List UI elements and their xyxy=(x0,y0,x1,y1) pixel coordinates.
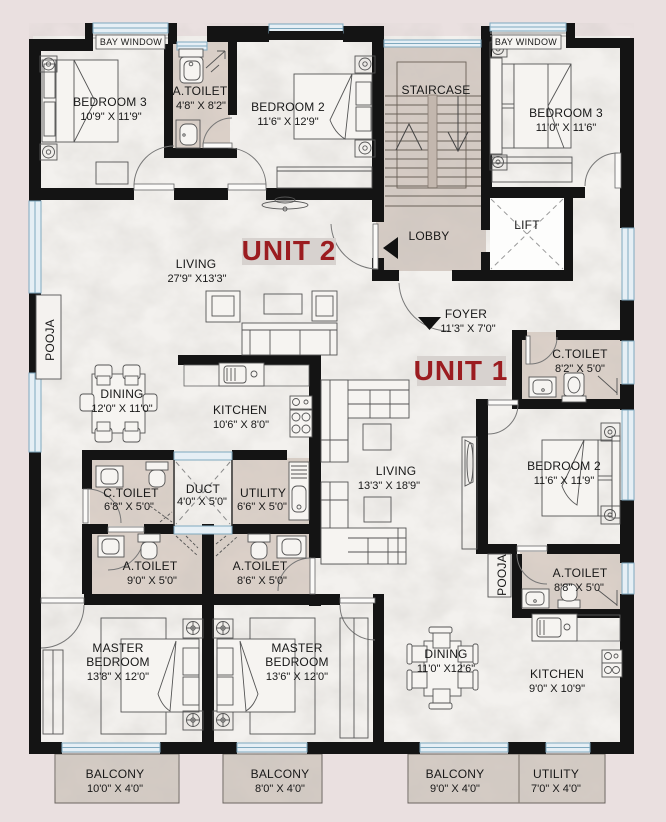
svg-text:A.TOILET: A.TOILET xyxy=(553,566,608,580)
svg-text:UNIT 2: UNIT 2 xyxy=(242,235,337,266)
svg-text:4'0" X 5'0": 4'0" X 5'0" xyxy=(177,496,227,508)
svg-text:FOYER: FOYER xyxy=(445,307,487,321)
svg-text:7'0" X 4'0": 7'0" X 4'0" xyxy=(531,783,581,795)
svg-text:9'0" X 5'0": 9'0" X 5'0" xyxy=(127,575,177,587)
svg-text:8'2" X 5'0": 8'2" X 5'0" xyxy=(555,363,605,375)
svg-text:8'0" X 4'0": 8'0" X 4'0" xyxy=(255,783,305,795)
svg-text:STAIRCASE: STAIRCASE xyxy=(402,83,471,97)
svg-text:13'8" X 12'0": 13'8" X 12'0" xyxy=(87,671,149,683)
svg-text:LIVING: LIVING xyxy=(176,257,217,271)
svg-text:8'6" X 5'0": 8'6" X 5'0" xyxy=(237,575,287,587)
svg-text:11'6" X 11'9": 11'6" X 11'9" xyxy=(534,475,595,487)
svg-text:LIVING: LIVING xyxy=(376,464,417,478)
svg-text:13'6" X 12'0": 13'6" X 12'0" xyxy=(266,671,328,683)
svg-text:C.TOILET: C.TOILET xyxy=(103,486,159,500)
svg-text:MASTER: MASTER xyxy=(271,641,322,655)
svg-text:LIFT: LIFT xyxy=(514,218,540,232)
svg-text:BALCONY: BALCONY xyxy=(426,767,485,781)
svg-text:9'0" X 10'9": 9'0" X 10'9" xyxy=(529,683,585,695)
svg-text:11'0" X12'6": 11'0" X12'6" xyxy=(417,663,475,675)
svg-text:DINING: DINING xyxy=(424,647,467,661)
svg-text:11'0" X 11'6": 11'0" X 11'6" xyxy=(536,122,597,134)
svg-text:12'0" X 11'0": 12'0" X 11'0" xyxy=(91,403,152,415)
svg-text:8'8" X 5'0": 8'8" X 5'0" xyxy=(554,582,604,594)
svg-text:9'0" X 4'0": 9'0" X 4'0" xyxy=(430,783,480,795)
svg-text:DINING: DINING xyxy=(100,387,143,401)
svg-text:BALCONY: BALCONY xyxy=(251,767,310,781)
svg-text:10'9" X 11'9": 10'9" X 11'9" xyxy=(80,111,141,123)
svg-text:13'3" X 18'9": 13'3" X 18'9" xyxy=(358,480,420,492)
svg-text:BAY WINDOW: BAY WINDOW xyxy=(100,37,162,47)
svg-text:BALCONY: BALCONY xyxy=(86,767,145,781)
svg-text:UTILITY: UTILITY xyxy=(533,767,579,781)
svg-text:6'6" X 5'0": 6'6" X 5'0" xyxy=(237,501,287,513)
svg-text:11'3" X 7'0": 11'3" X 7'0" xyxy=(440,323,495,335)
svg-text:UNIT 1: UNIT 1 xyxy=(414,355,509,386)
svg-text:11'6" X 12'9": 11'6" X 12'9" xyxy=(257,116,318,128)
svg-text:6'8" X 5'0": 6'8" X 5'0" xyxy=(104,501,154,513)
svg-text:10'6" X 8'0": 10'6" X 8'0" xyxy=(213,419,269,431)
svg-text:C.TOILET: C.TOILET xyxy=(552,347,608,361)
svg-text:BEDROOM 3: BEDROOM 3 xyxy=(529,106,603,120)
svg-text:BEDROOM 2: BEDROOM 2 xyxy=(251,100,325,114)
svg-text:27'9" X13'3": 27'9" X13'3" xyxy=(167,273,226,285)
svg-text:BEDROOM 2: BEDROOM 2 xyxy=(527,459,601,473)
svg-text:A.TOILET: A.TOILET xyxy=(173,84,228,98)
svg-text:A.TOILET: A.TOILET xyxy=(123,559,178,573)
svg-text:BAY WINDOW: BAY WINDOW xyxy=(495,37,557,47)
svg-text:POOJA: POOJA xyxy=(43,319,57,361)
svg-text:BEDROOM: BEDROOM xyxy=(86,655,149,669)
svg-text:BEDROOM 3: BEDROOM 3 xyxy=(73,95,147,109)
svg-text:BEDROOM: BEDROOM xyxy=(265,655,328,669)
svg-text:A.TOILET: A.TOILET xyxy=(233,559,288,573)
svg-text:4'8" X 8'2": 4'8" X 8'2" xyxy=(176,100,226,112)
svg-text:UTILITY: UTILITY xyxy=(240,486,286,500)
svg-text:POOJA: POOJA xyxy=(495,554,509,596)
svg-text:MASTER: MASTER xyxy=(92,641,143,655)
svg-text:LOBBY: LOBBY xyxy=(408,229,449,243)
svg-text:10'0" X 4'0": 10'0" X 4'0" xyxy=(87,783,143,795)
svg-text:KITCHEN: KITCHEN xyxy=(213,403,267,417)
svg-text:KITCHEN: KITCHEN xyxy=(530,667,584,681)
svg-text:DUCT: DUCT xyxy=(186,482,221,496)
